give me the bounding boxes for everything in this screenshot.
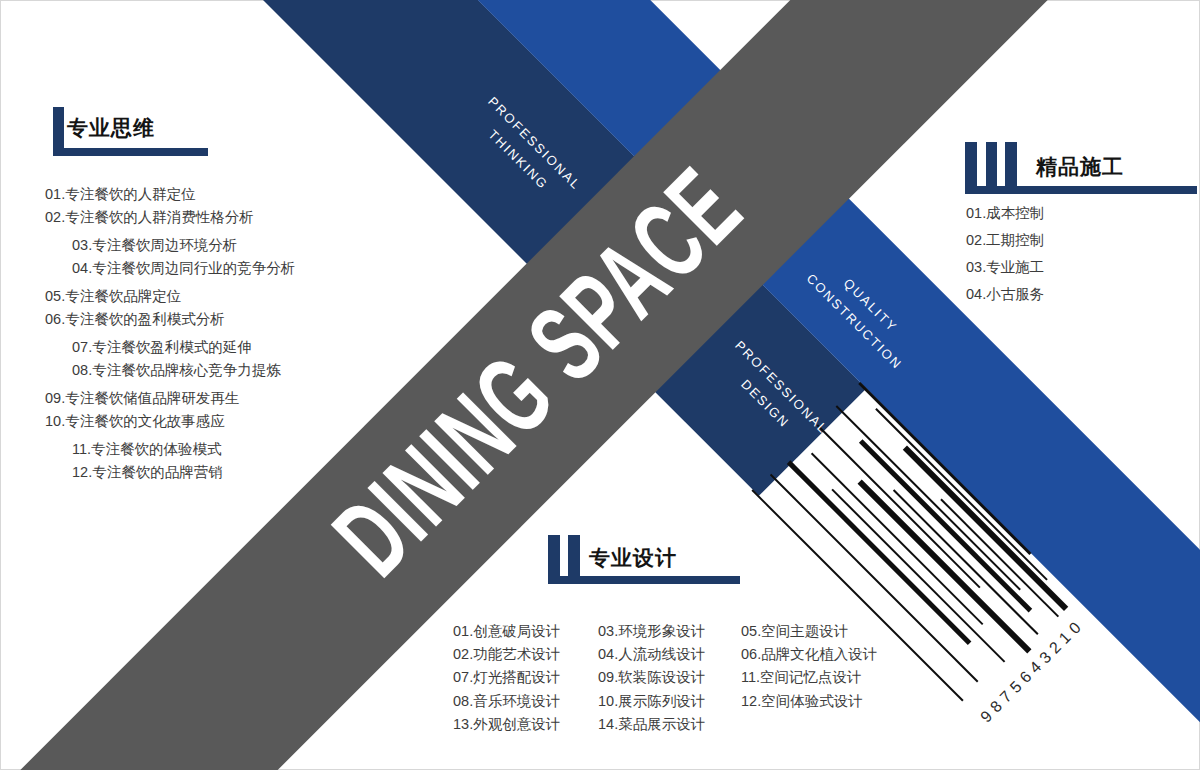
list-group: 07.专注餐饮盈利模式的延伸 08.专注餐饮品牌核心竞争力提炼	[45, 336, 295, 382]
list-item: 04.人流动线设计	[598, 643, 705, 666]
list-group: 03.专注餐饮周边环境分析 04.专注餐饮周边同行业的竞争分析	[45, 234, 295, 280]
list-item: 04.专注餐饮周边同行业的竞争分析	[72, 257, 295, 280]
list-item: 08.音乐环境设计	[453, 690, 560, 713]
list-group: 11.专注餐饮的体验模式 12.专注餐饮的品牌营销	[45, 438, 295, 484]
list-item: 03.环境形象设计	[598, 620, 705, 643]
list-item: 03.专注餐饮周边环境分析	[72, 234, 295, 257]
list-item: 12.专注餐饮的品牌营销	[72, 461, 295, 484]
list-group: 09.专注餐饮储值品牌研发再生 10.专注餐饮的文化故事感应	[45, 387, 295, 433]
design-title-underline	[548, 576, 740, 584]
list-item: 12.空间体验式设计	[741, 690, 877, 713]
list-item: 11.空间记忆点设计	[741, 666, 877, 689]
list-item: 02.工期控制	[966, 227, 1044, 254]
slide-canvas: 9875643210 PROFESSIONAL THINKING QUALITY…	[0, 0, 1200, 770]
list-item: 13.外观创意设计	[453, 713, 560, 736]
list-group: 05.专注餐饮品牌定位 06.专注餐饮的盈利模式分析	[45, 285, 295, 331]
list-item: 14.菜品展示设计	[598, 713, 705, 736]
construction-title-bar-icon	[965, 142, 977, 186]
list-group: 01.专注餐饮的人群定位 02.专注餐饮的人群消费性格分析	[45, 183, 295, 229]
list-item: 03.专业施工	[966, 254, 1044, 281]
construction-list: 01.成本控制 02.工期控制 03.专业施工 04.小古服务	[966, 200, 1044, 308]
list-item: 07.专注餐饮盈利模式的延伸	[72, 336, 295, 359]
list-item: 01.创意破局设计	[453, 620, 560, 643]
construction-section-title: 精品施工	[1036, 153, 1124, 181]
list-item: 02.专注餐饮的人群消费性格分析	[45, 206, 295, 229]
list-item: 09.软装陈设设计	[598, 666, 705, 689]
list-item: 11.专注餐饮的体验模式	[72, 438, 295, 461]
list-item: 05.专注餐饮品牌定位	[45, 285, 295, 308]
design-list-column-3: 05.空间主题设计 06.品牌文化植入设计 11.空间记忆点设计 12.空间体验…	[741, 620, 877, 713]
list-item: 02.功能艺术设计	[453, 643, 560, 666]
list-item: 01.专注餐饮的人群定位	[45, 183, 295, 206]
list-item: 10.展示陈列设计	[598, 690, 705, 713]
list-item: 04.小古服务	[966, 281, 1044, 308]
construction-title-underline	[965, 186, 1197, 194]
list-item: 06.品牌文化植入设计	[741, 643, 877, 666]
construction-title-bar-icon	[1005, 142, 1017, 186]
list-item: 07.灯光搭配设计	[453, 666, 560, 689]
design-section-title: 专业设计	[589, 544, 677, 572]
design-list-column-1: 01.创意破局设计 02.功能艺术设计 07.灯光搭配设计 08.音乐环境设计 …	[453, 620, 560, 736]
thinking-section-title: 专业思维	[67, 114, 155, 142]
list-item: 09.专注餐饮储值品牌研发再生	[45, 387, 295, 410]
thinking-list: 01.专注餐饮的人群定位 02.专注餐饮的人群消费性格分析 03.专注餐饮周边环…	[45, 183, 295, 489]
list-item: 06.专注餐饮的盈利模式分析	[45, 308, 295, 331]
list-item: 05.空间主题设计	[741, 620, 877, 643]
list-item: 10.专注餐饮的文化故事感应	[45, 410, 295, 433]
list-item: 01.成本控制	[966, 200, 1044, 227]
thinking-title-underline	[53, 148, 208, 156]
design-list-column-2: 03.环境形象设计 04.人流动线设计 09.软装陈设设计 10.展示陈列设计 …	[598, 620, 705, 736]
list-item: 08.专注餐饮品牌核心竞争力提炼	[72, 359, 295, 382]
construction-title-bar-icon	[986, 142, 997, 186]
